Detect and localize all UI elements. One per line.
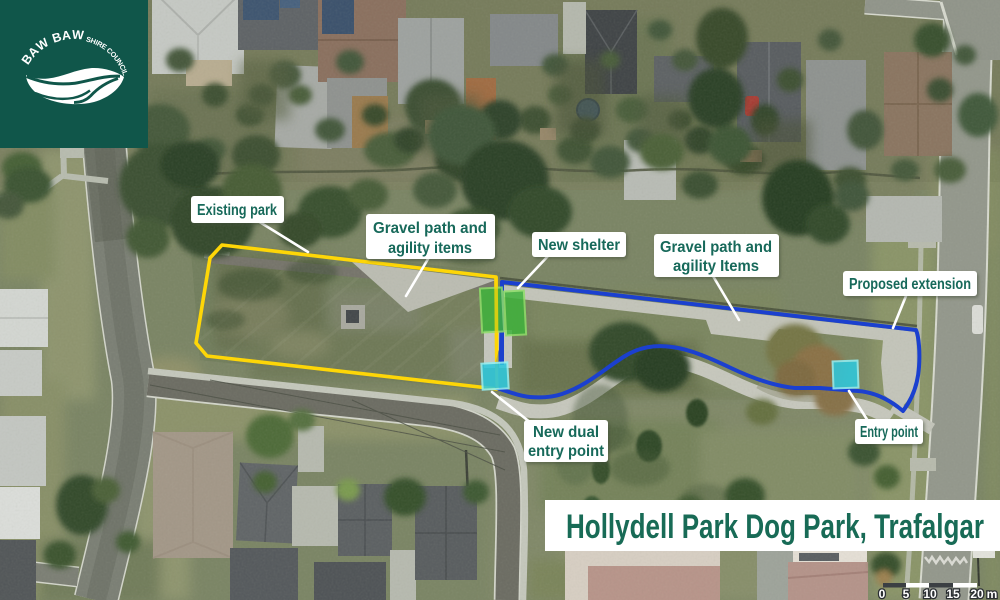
svg-text:Gravel path and: Gravel path and xyxy=(373,220,487,237)
svg-text:15: 15 xyxy=(946,587,960,600)
svg-text:m: m xyxy=(987,587,998,600)
svg-text:entry point: entry point xyxy=(528,443,605,460)
svg-text:W: W xyxy=(72,28,85,43)
svg-text:New shelter: New shelter xyxy=(538,237,620,254)
svg-text:A: A xyxy=(61,28,72,43)
svg-text:agility items: agility items xyxy=(388,240,472,257)
svg-text:Existing park: Existing park xyxy=(197,202,277,219)
svg-text:New dual: New dual xyxy=(533,424,599,441)
svg-text:Proposed extension: Proposed extension xyxy=(849,276,971,293)
svg-text:agility Items: agility Items xyxy=(673,258,759,275)
svg-text:5: 5 xyxy=(903,587,910,600)
svg-text:Entry point: Entry point xyxy=(860,424,918,441)
svg-text:20: 20 xyxy=(970,587,984,600)
svg-text:Gravel path and: Gravel path and xyxy=(660,239,772,256)
svg-text:Hollydell Park Dog Park, Trafa: Hollydell Park Dog Park, Trafalgar xyxy=(566,508,984,546)
svg-text:0: 0 xyxy=(879,587,886,600)
svg-text:10: 10 xyxy=(923,587,937,600)
